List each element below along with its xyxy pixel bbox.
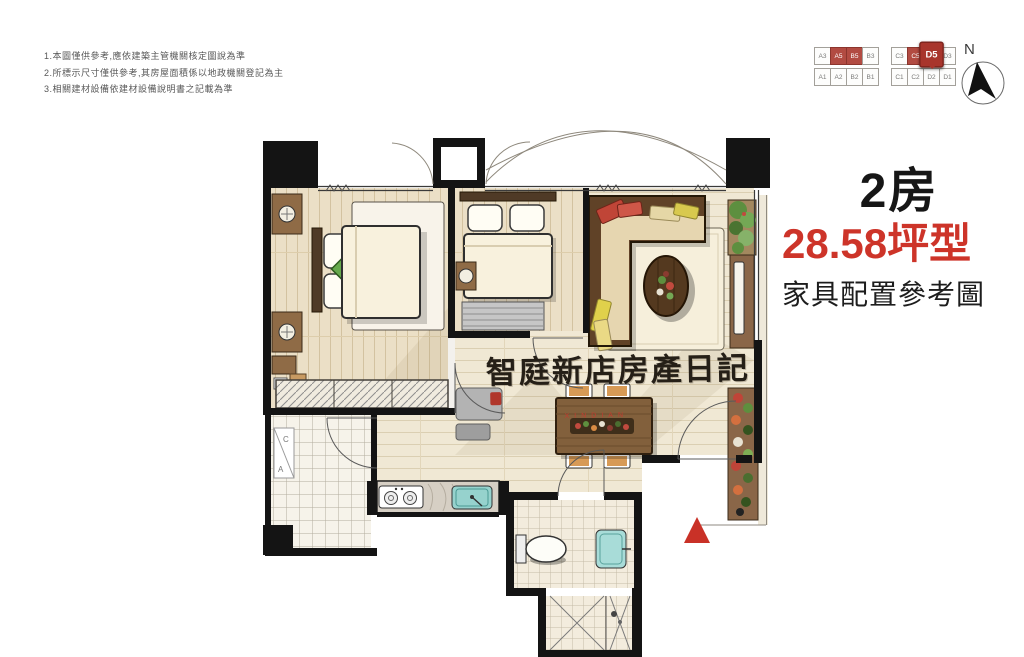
side-table: [272, 356, 296, 374]
cabinet: [456, 388, 502, 420]
wardrobe: [276, 380, 448, 408]
toilet-tank: [516, 535, 526, 563]
shower-head: [611, 611, 617, 617]
sofa-cushion: [617, 201, 643, 217]
bed-duvet: [464, 234, 552, 298]
floor-plan: C A: [0, 0, 1024, 657]
burner: [385, 492, 398, 505]
compass-needle: [968, 62, 996, 99]
ac-label-bottom: A: [278, 465, 284, 474]
pillow: [468, 205, 502, 231]
bed-duvet: [342, 226, 420, 318]
keyplan-unit-D5: D5: [919, 42, 944, 68]
bed-headboard: [460, 192, 556, 201]
compass-label: N: [964, 41, 975, 58]
toilet: [526, 536, 566, 562]
cabinet: [456, 424, 490, 440]
bed-headboard: [312, 228, 322, 312]
window-swing-arc: [486, 131, 726, 182]
burner: [404, 492, 417, 505]
tv: [734, 262, 744, 334]
pillow: [510, 205, 544, 231]
column: [726, 138, 770, 188]
column: [263, 141, 318, 188]
entrance-marker-triangle: [684, 517, 710, 543]
window-swing-arc: [486, 131, 726, 184]
ac-label-top: C: [283, 435, 289, 444]
lamp: [459, 269, 473, 283]
compass-north-icon: N: [962, 41, 1004, 104]
